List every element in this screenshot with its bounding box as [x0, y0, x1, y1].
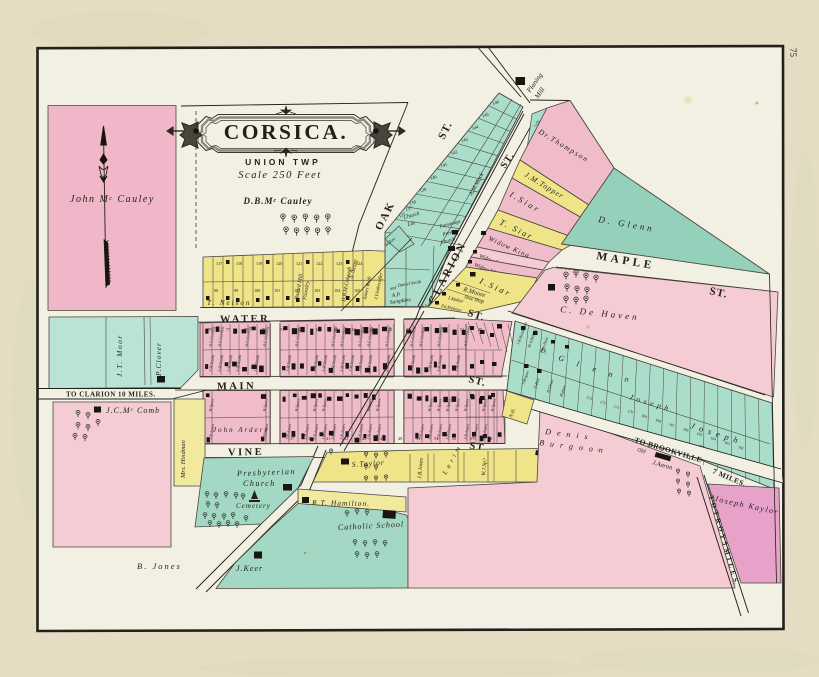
svg-text:J.Keer: J.Keer [236, 564, 263, 573]
svg-text:101: 101 [274, 288, 280, 293]
svg-text:CORSICA.: CORSICA. [224, 120, 349, 144]
svg-text:39: 39 [308, 436, 312, 441]
svg-text:49: 49 [478, 327, 482, 332]
svg-text:37: 37 [290, 436, 294, 441]
svg-text:Scale 250 Feet: Scale 250 Feet [238, 170, 321, 181]
svg-text:D.B.Mc Cauley: D.B.Mc Cauley [243, 196, 313, 206]
svg-text:J.T. Moor: J.T. Moor [115, 334, 124, 377]
svg-text:75: 75 [788, 48, 798, 58]
svg-text:John Ardery: John Ardery [213, 426, 269, 434]
svg-text:120: 120 [276, 261, 282, 266]
svg-text:79: 79 [208, 327, 212, 332]
svg-text:VINE: VINE [228, 447, 264, 459]
svg-text:124: 124 [356, 261, 363, 266]
svg-text:49: 49 [398, 436, 402, 441]
svg-text:55: 55 [424, 327, 428, 332]
svg-text:P.Clover: P.Clover [154, 342, 163, 377]
svg-text:J.C.Mc Comb: J.C.Mc Comb [106, 406, 160, 415]
svg-text:TO CLARION 10 MILES.: TO CLARION 10 MILES. [66, 391, 156, 399]
svg-text:99: 99 [234, 288, 238, 293]
svg-text:67: 67 [316, 327, 320, 332]
svg-text:47: 47 [380, 436, 384, 441]
svg-text:45: 45 [362, 436, 366, 441]
svg-text:61: 61 [370, 327, 374, 332]
svg-text:41: 41 [326, 436, 330, 441]
svg-text:104: 104 [334, 288, 341, 293]
svg-text:Mrs. Hindman: Mrs. Hindman [180, 440, 187, 479]
svg-text:123: 123 [336, 261, 342, 266]
svg-text:100: 100 [254, 288, 260, 293]
svg-text:51: 51 [460, 327, 464, 332]
svg-text:119: 119 [256, 261, 262, 266]
svg-text:T. Nelson: T. Nelson [207, 299, 251, 307]
svg-text:UNION TWP: UNION TWP [245, 157, 321, 167]
svg-text:118: 118 [236, 261, 242, 266]
svg-text:75: 75 [244, 327, 248, 332]
svg-text:59: 59 [488, 436, 492, 441]
svg-text:B. Jones: B. Jones [137, 561, 182, 571]
svg-text:69: 69 [298, 327, 302, 332]
svg-text:63: 63 [352, 327, 356, 332]
svg-text:77: 77 [226, 327, 230, 332]
svg-text:103: 103 [314, 288, 320, 293]
svg-text:122: 122 [316, 261, 322, 266]
svg-text:98: 98 [214, 288, 218, 293]
svg-text:117: 117 [216, 261, 222, 266]
svg-text:71: 71 [280, 327, 284, 332]
svg-text:Cemetery: Cemetery [236, 502, 271, 510]
svg-text:73: 73 [262, 327, 266, 332]
svg-text:102: 102 [294, 288, 300, 293]
svg-text:MAIN: MAIN [217, 381, 256, 393]
svg-text:59: 59 [388, 327, 392, 332]
svg-text:53: 53 [442, 327, 446, 332]
svg-text:Church: Church [243, 479, 276, 488]
svg-text:R.T. Hamilton.: R.T. Hamilton. [311, 498, 370, 508]
svg-text:121: 121 [296, 261, 302, 266]
svg-text:53: 53 [434, 436, 438, 441]
svg-text:55: 55 [452, 436, 456, 441]
svg-text:65: 65 [334, 327, 338, 332]
svg-text:51: 51 [416, 436, 420, 441]
